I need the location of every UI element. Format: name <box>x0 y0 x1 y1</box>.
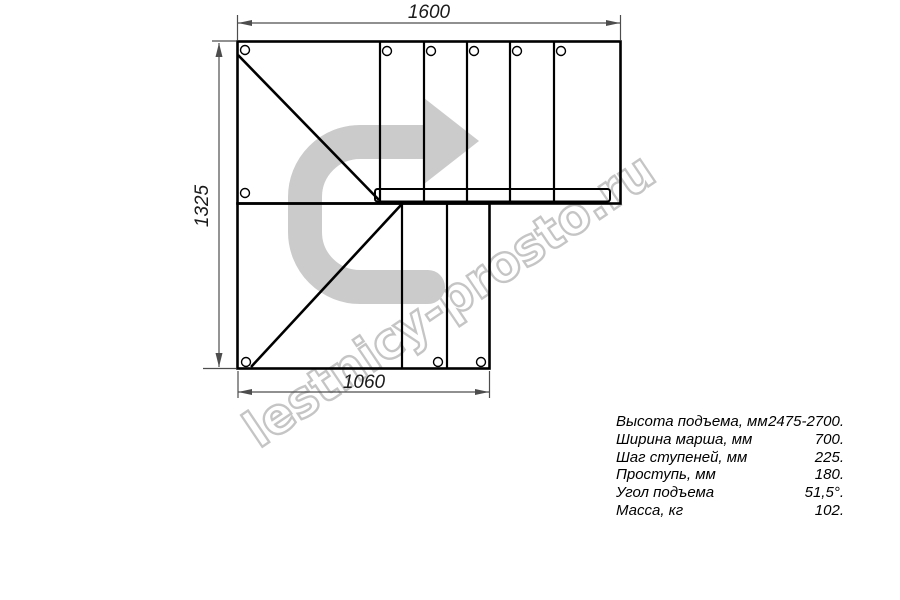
spec-label: Высота подъема, мм <box>616 413 768 431</box>
spec-label: Проступь, мм <box>616 466 716 484</box>
spec-value: 2475-2700. <box>768 413 844 431</box>
dimension-label-top-width: 1600 <box>408 2 451 23</box>
spec-label: Ширина марша, мм <box>616 431 752 449</box>
dimension-label-bottom-width: 1060 <box>343 372 386 393</box>
walk-direction-arrow-head <box>424 98 479 184</box>
spec-row-step-pitch: Шаг ступеней, мм 225. <box>616 449 844 467</box>
spec-row-height: Высота подъема, мм 2475-2700. <box>616 413 844 431</box>
spec-row-tread: Проступь, мм 180. <box>616 466 844 484</box>
walk-direction-arrow <box>305 98 479 287</box>
spec-value: 225. <box>815 449 844 467</box>
spec-label: Угол подъема <box>616 484 714 502</box>
upper-flight-tread-lines <box>380 42 554 203</box>
spec-value: 700. <box>815 431 844 449</box>
spec-table: Высота подъема, мм 2475-2700. Ширина мар… <box>616 413 844 520</box>
dimension-label-left-height: 1325 <box>192 184 213 227</box>
spec-row-mass: Масса, кг 102. <box>616 502 844 520</box>
spec-row-angle: Угол подъема 51,5°. <box>616 484 844 502</box>
spec-value: 180. <box>815 466 844 484</box>
spec-row-flight-width: Ширина марша, мм 700. <box>616 431 844 449</box>
spec-label: Масса, кг <box>616 502 683 520</box>
spec-value: 51,5°. <box>805 484 844 502</box>
spec-value: 102. <box>815 502 844 520</box>
staircase-drawing-canvas: lestnicy-prosto.ru <box>0 0 900 600</box>
walk-direction-arrow-shaft <box>305 142 428 287</box>
spec-label: Шаг ступеней, мм <box>616 449 747 467</box>
